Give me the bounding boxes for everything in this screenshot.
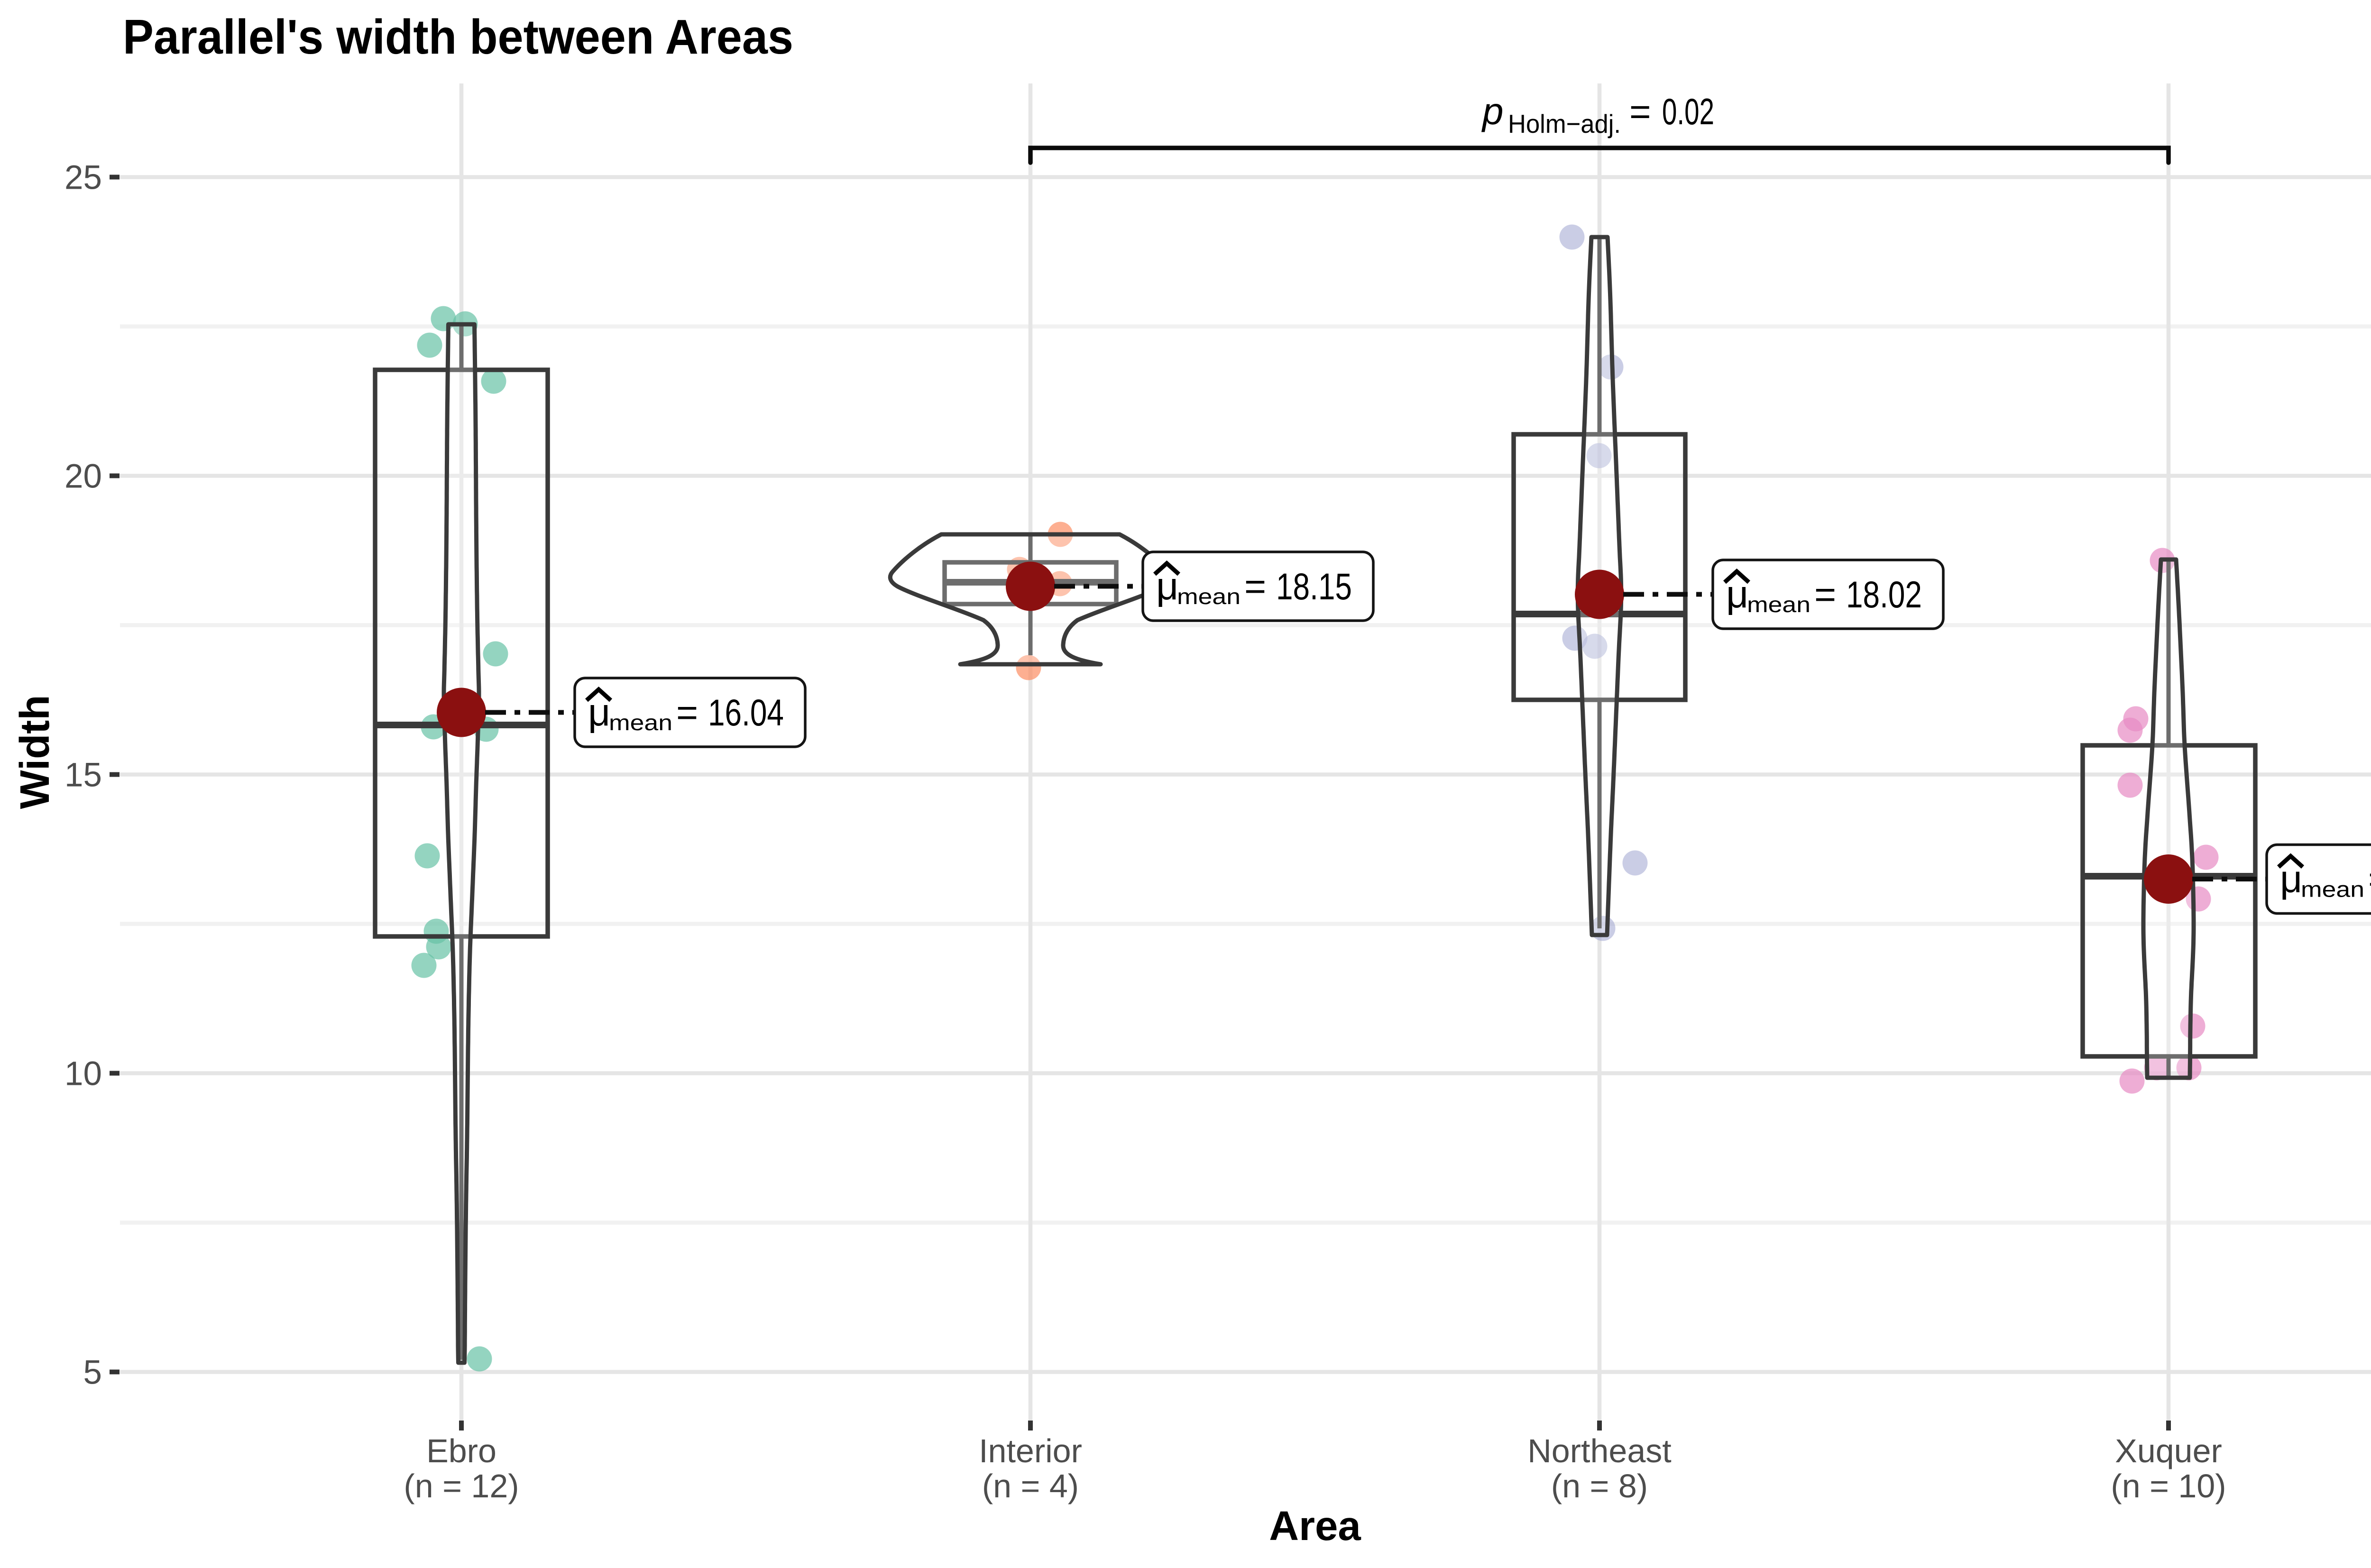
svg-text:μ: μ bbox=[2280, 858, 2302, 901]
svg-text:mean: mean bbox=[1747, 592, 1810, 617]
svg-text:5: 5 bbox=[83, 1354, 102, 1392]
svg-text:16.04: 16.04 bbox=[708, 691, 784, 734]
svg-text:(n = 12): (n = 12) bbox=[404, 1467, 519, 1504]
svg-text:mean: mean bbox=[609, 710, 672, 735]
svg-text:μ: μ bbox=[588, 691, 610, 734]
svg-text:mean: mean bbox=[1177, 584, 1241, 609]
svg-text:Parallel's width between Areas: Parallel's width between Areas bbox=[123, 9, 793, 64]
svg-text:mean: mean bbox=[2301, 877, 2364, 902]
svg-text:Ebro: Ebro bbox=[426, 1432, 496, 1469]
svg-text:25: 25 bbox=[64, 159, 102, 197]
svg-text:Width: Width bbox=[12, 695, 58, 809]
svg-text:20: 20 bbox=[64, 458, 102, 495]
svg-text:μ: μ bbox=[1726, 573, 1748, 616]
svg-text:(n = 10): (n = 10) bbox=[2111, 1467, 2226, 1504]
svg-text:10: 10 bbox=[64, 1055, 102, 1093]
svg-text:Interior: Interior bbox=[979, 1432, 1082, 1469]
svg-text:p: p bbox=[1481, 90, 1504, 132]
svg-text:Xuquer: Xuquer bbox=[2115, 1432, 2222, 1469]
svg-text:(n = 4): (n = 4) bbox=[982, 1467, 1079, 1504]
svg-text:18.02: 18.02 bbox=[1846, 573, 1922, 615]
svg-text:Holm−adj.: Holm−adj. bbox=[1508, 109, 1621, 138]
svg-text:=: = bbox=[676, 691, 698, 734]
svg-text:Northeast: Northeast bbox=[1527, 1432, 1671, 1469]
svg-text:=: = bbox=[2368, 858, 2371, 900]
svg-text:=: = bbox=[1629, 91, 1651, 132]
svg-text:μ: μ bbox=[1156, 565, 1178, 608]
svg-text:=: = bbox=[1244, 565, 1266, 607]
svg-text:18.15: 18.15 bbox=[1276, 565, 1352, 607]
svg-text:=: = bbox=[1814, 573, 1836, 615]
svg-text:Area: Area bbox=[1269, 1503, 1361, 1549]
svg-text:(n = 8): (n = 8) bbox=[1551, 1467, 1648, 1504]
svg-text:0.02: 0.02 bbox=[1662, 91, 1714, 132]
svg-text:15: 15 bbox=[64, 757, 102, 794]
